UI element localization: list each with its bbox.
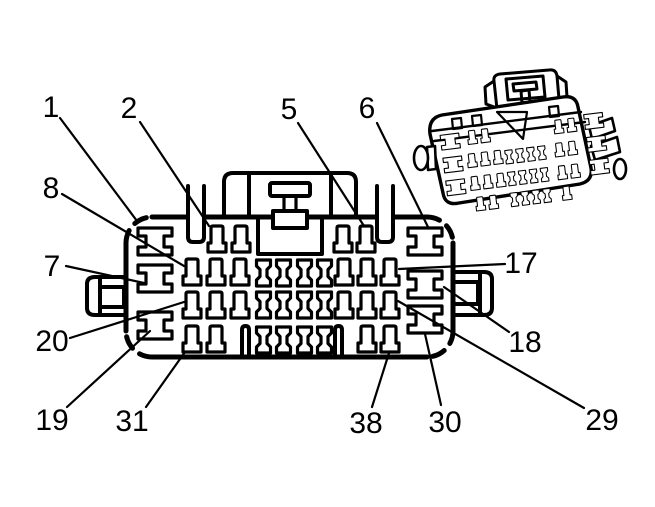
terminal-bowtie <box>277 292 291 318</box>
leader-line-2 <box>140 122 209 226</box>
terminal-large-pin7 <box>138 265 172 292</box>
callout-30: 30 <box>428 406 461 439</box>
terminal-bowtie <box>318 260 332 286</box>
leader-line-30 <box>425 334 441 405</box>
latch-clasp <box>273 211 307 228</box>
leader-line-19 <box>67 331 150 407</box>
terminal-small-pin29 <box>381 292 399 318</box>
terminal-bowtie <box>257 292 271 318</box>
terminal-small <box>358 292 376 318</box>
terminal-bowtie <box>298 327 312 353</box>
callout-29: 29 <box>585 404 618 437</box>
terminal-large-pin18 <box>408 271 442 298</box>
left-cylinder-3d <box>414 146 436 170</box>
diagram-canvas: 1 2 5 6 8 7 17 18 20 19 31 38 30 29 <box>0 0 655 507</box>
connector-diagram-svg: 1 2 5 6 8 7 17 18 20 19 31 38 30 29 <box>0 0 655 507</box>
left-ear <box>87 277 126 315</box>
terminal-small <box>358 259 376 285</box>
callout-19: 19 <box>35 404 68 437</box>
callout-5: 5 <box>281 93 298 126</box>
terminal-small <box>358 326 376 352</box>
terminal-grid <box>138 226 442 353</box>
terminal-small <box>231 292 249 318</box>
terminal-3d <box>543 188 552 202</box>
terminal-small-pin8 <box>183 259 201 285</box>
callout-8: 8 <box>43 172 60 205</box>
callout-18: 18 <box>508 326 541 359</box>
terminal-bowtie <box>277 260 291 286</box>
terminal-small <box>357 226 375 252</box>
terminal-small-pin17 <box>381 259 399 285</box>
terminal-small <box>334 226 352 252</box>
terminal-bowtie <box>318 292 332 318</box>
leader-line-1 <box>60 118 137 221</box>
terminal-3d <box>532 190 541 204</box>
terminal-bowtie <box>277 327 291 353</box>
leader-line-7 <box>66 266 144 283</box>
callout-1: 1 <box>43 91 60 124</box>
terminal-small <box>232 226 250 252</box>
terminal-bowtie <box>298 292 312 318</box>
terminal-large-pin6 <box>408 228 442 255</box>
callout-2: 2 <box>121 92 138 125</box>
terminal-small <box>335 259 353 285</box>
terminal-small <box>207 292 225 318</box>
connector-face-diagram <box>87 173 492 357</box>
callout-20: 20 <box>35 325 68 358</box>
terminal-3d <box>510 192 519 206</box>
terminal-3d <box>561 186 572 201</box>
terminal-3d <box>521 191 530 205</box>
terminal-bowtie <box>257 260 271 286</box>
leader-line-38 <box>372 353 389 407</box>
terminal-small <box>231 259 249 285</box>
terminal-bowtie <box>298 260 312 286</box>
callout-6: 6 <box>359 92 376 125</box>
leader-line-31 <box>146 352 185 407</box>
terminal-small <box>208 226 226 252</box>
terminal-bowtie <box>318 327 332 353</box>
callout-7: 7 <box>44 250 61 283</box>
connector-3d-view <box>414 70 626 214</box>
terminal-small <box>207 259 225 285</box>
terminal-small <box>207 326 225 352</box>
callout-17: 17 <box>504 247 537 280</box>
right-ear <box>453 272 492 315</box>
terminal-small-pin20 <box>183 292 201 318</box>
terminal-small-pin31 <box>183 326 201 352</box>
callout-38: 38 <box>349 407 382 440</box>
terminal-small <box>335 292 353 318</box>
terminal-bowtie <box>257 327 271 353</box>
terminal-small-pin38 <box>381 326 399 352</box>
latch-tab <box>270 183 310 196</box>
callout-31: 31 <box>115 405 148 438</box>
